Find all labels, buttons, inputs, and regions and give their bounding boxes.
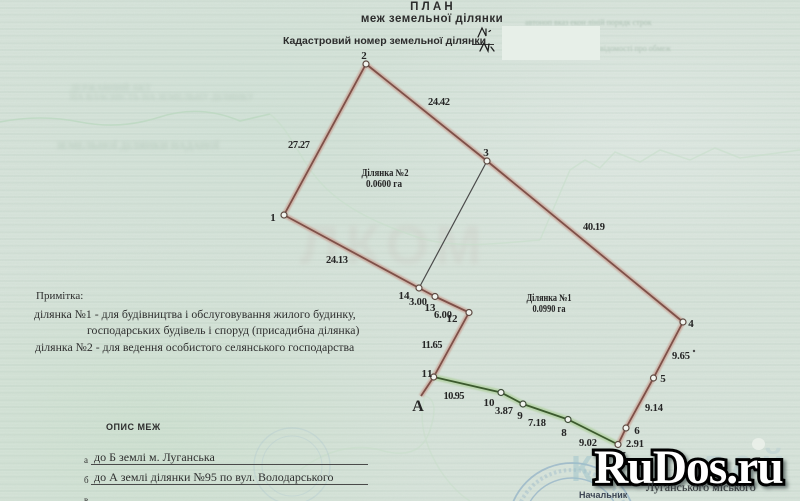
svg-text:9.65: 9.65 — [672, 351, 690, 362]
svg-text:4: 4 — [688, 318, 694, 330]
svg-text:Ділянка №1: Ділянка №1 — [527, 293, 572, 304]
svg-text:5: 5 — [660, 373, 666, 385]
svg-text:8: 8 — [561, 427, 567, 439]
svg-text:0.0600 га: 0.0600 га — [366, 179, 402, 190]
svg-text:Ділянка №2: Ділянка №2 — [362, 168, 409, 179]
svg-text:3.00: 3.00 — [409, 297, 427, 308]
svg-text:3.87: 3.87 — [495, 406, 513, 417]
svg-text:А: А — [412, 398, 424, 415]
svg-text:24.13: 24.13 — [326, 255, 348, 266]
svg-text:24.42: 24.42 — [428, 97, 450, 108]
svg-text:9: 9 — [517, 410, 523, 422]
svg-text:10: 10 — [484, 397, 496, 409]
svg-text:27.27: 27.27 — [288, 140, 310, 151]
svg-text:2: 2 — [361, 50, 367, 62]
svg-text:11: 11 — [422, 368, 433, 380]
svg-text:9.14: 9.14 — [645, 403, 664, 414]
svg-text:40.19: 40.19 — [583, 222, 605, 233]
svg-text:3: 3 — [483, 147, 489, 159]
svg-text:7.18: 7.18 — [528, 418, 546, 429]
svg-text:1: 1 — [270, 212, 276, 224]
svg-text:10.95: 10.95 — [444, 391, 465, 402]
svg-text:6.00: 6.00 — [434, 310, 452, 321]
svg-text:11.65: 11.65 — [422, 340, 443, 351]
svg-text:0.0990 га: 0.0990 га — [533, 304, 566, 315]
